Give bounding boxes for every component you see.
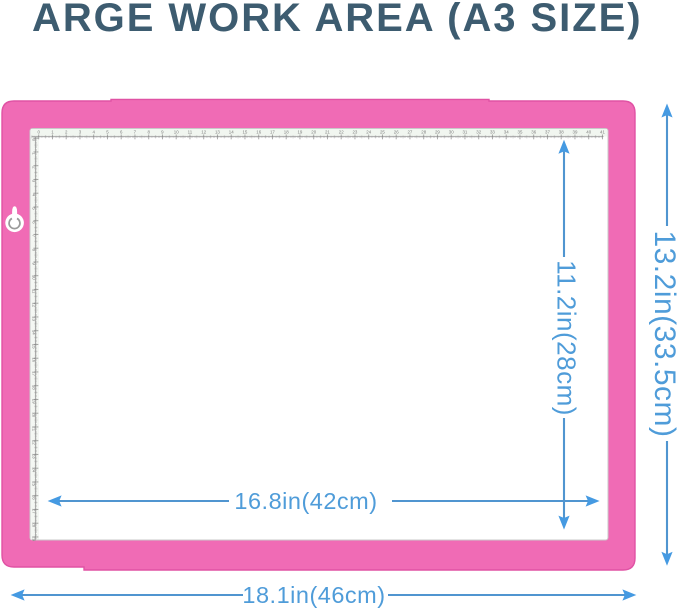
svg-text:23: 23 xyxy=(352,130,357,135)
svg-text:28: 28 xyxy=(421,130,426,135)
svg-text:16: 16 xyxy=(256,130,261,135)
svg-text:19: 19 xyxy=(297,130,302,135)
svg-text:24: 24 xyxy=(366,130,371,135)
svg-text:18: 18 xyxy=(284,130,289,135)
svg-text:36: 36 xyxy=(531,130,536,135)
svg-text:35: 35 xyxy=(518,130,523,135)
svg-text:16.8in(42cm): 16.8in(42cm) xyxy=(234,488,377,514)
svg-text:13: 13 xyxy=(215,130,220,135)
svg-text:31: 31 xyxy=(462,130,467,135)
svg-text:27: 27 xyxy=(407,130,412,135)
svg-text:32: 32 xyxy=(476,130,481,135)
svg-text:39: 39 xyxy=(573,130,578,135)
svg-text:41: 41 xyxy=(600,130,605,135)
svg-text:11.2in(28cm): 11.2in(28cm) xyxy=(552,260,582,416)
svg-text:18.1in(46cm): 18.1in(46cm) xyxy=(242,582,385,608)
svg-text:30: 30 xyxy=(449,130,454,135)
svg-text:21: 21 xyxy=(325,130,330,135)
svg-text:33: 33 xyxy=(490,130,495,135)
svg-text:12: 12 xyxy=(201,130,206,135)
svg-text:15: 15 xyxy=(242,130,247,135)
svg-text:10: 10 xyxy=(174,130,179,135)
svg-text:25: 25 xyxy=(380,130,385,135)
svg-text:13.2in(33.5cm): 13.2in(33.5cm) xyxy=(648,230,679,437)
svg-text:11: 11 xyxy=(188,130,193,135)
svg-text:29: 29 xyxy=(435,130,440,135)
svg-text:14: 14 xyxy=(229,130,234,135)
svg-text:20: 20 xyxy=(311,130,316,135)
svg-text:17: 17 xyxy=(270,130,275,135)
svg-text:40: 40 xyxy=(586,130,591,135)
svg-text:26: 26 xyxy=(394,130,399,135)
svg-text:38: 38 xyxy=(559,130,564,135)
svg-text:37: 37 xyxy=(545,130,550,135)
svg-text:22: 22 xyxy=(339,130,344,135)
svg-text:34: 34 xyxy=(504,130,509,135)
